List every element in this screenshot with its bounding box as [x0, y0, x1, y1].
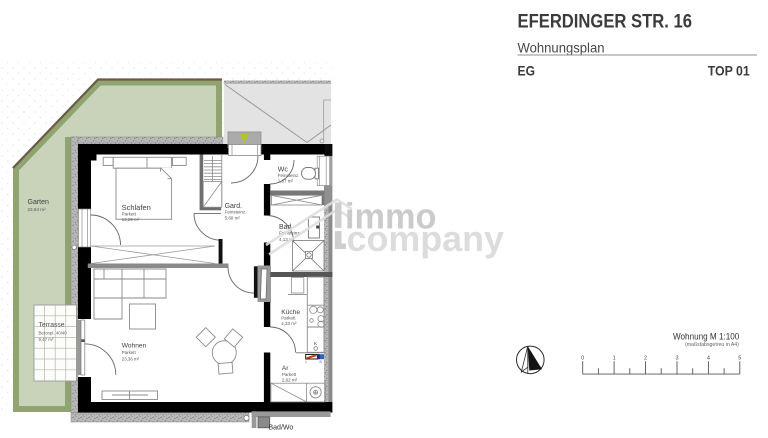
svg-text:1: 1 [613, 356, 616, 362]
svg-text:23,84 m²: 23,84 m² [28, 207, 47, 212]
svg-text:Parkett: Parkett [122, 350, 137, 355]
svg-text:Terrasse: Terrasse [39, 321, 65, 328]
svg-text:Parkett: Parkett [122, 212, 137, 217]
svg-text:0: 0 [581, 356, 584, 362]
svg-text:Garten: Garten [28, 199, 50, 206]
svg-text:2: 2 [644, 356, 647, 362]
svg-text:(maßstabsgetreu in A4): (maßstabsgetreu in A4) [685, 342, 739, 348]
svg-text:Parkett: Parkett [282, 372, 297, 377]
svg-text:B: B [320, 360, 322, 364]
svg-text:23,36 m²: 23,36 m² [122, 357, 140, 362]
svg-text:EFERDINGER STR. 16: EFERDINGER STR. 16 [518, 12, 693, 33]
svg-text:5,68 m²: 5,68 m² [225, 216, 241, 221]
svg-text:5: 5 [738, 356, 741, 362]
svg-text:Parkett: Parkett [281, 316, 296, 321]
svg-text:Betonpl. 40/40: Betonpl. 40/40 [39, 330, 68, 335]
svg-text:4: 4 [707, 356, 710, 362]
svg-text:company: company [347, 218, 505, 259]
svg-text:1,87 m²: 1,87 m² [278, 179, 294, 184]
svg-text:L: L [306, 360, 308, 364]
svg-text:Feinsteinz.: Feinsteinz. [278, 173, 300, 178]
svg-text:K: K [314, 341, 317, 346]
svg-text:Wohnen: Wohnen [122, 342, 147, 349]
svg-text:13,29 m²: 13,29 m² [122, 217, 140, 222]
svg-text:EG: EG [518, 64, 536, 79]
svg-text:9,47 m²: 9,47 m² [39, 337, 54, 342]
svg-text:Feinsteinz.: Feinsteinz. [225, 210, 247, 215]
svg-text:Schlafen: Schlafen [122, 203, 151, 212]
svg-text:4,33 m²: 4,33 m² [281, 321, 297, 326]
svg-text:Wohnung M 1:100: Wohnung M 1:100 [673, 332, 739, 343]
svg-text:Wohnungsplan: Wohnungsplan [518, 40, 605, 56]
svg-text:Bad/Wo: Bad/Wo [269, 425, 294, 432]
svg-text:2,62 m²: 2,62 m² [282, 378, 298, 383]
svg-text:3: 3 [675, 356, 678, 362]
svg-text:TOP 01: TOP 01 [708, 64, 750, 79]
